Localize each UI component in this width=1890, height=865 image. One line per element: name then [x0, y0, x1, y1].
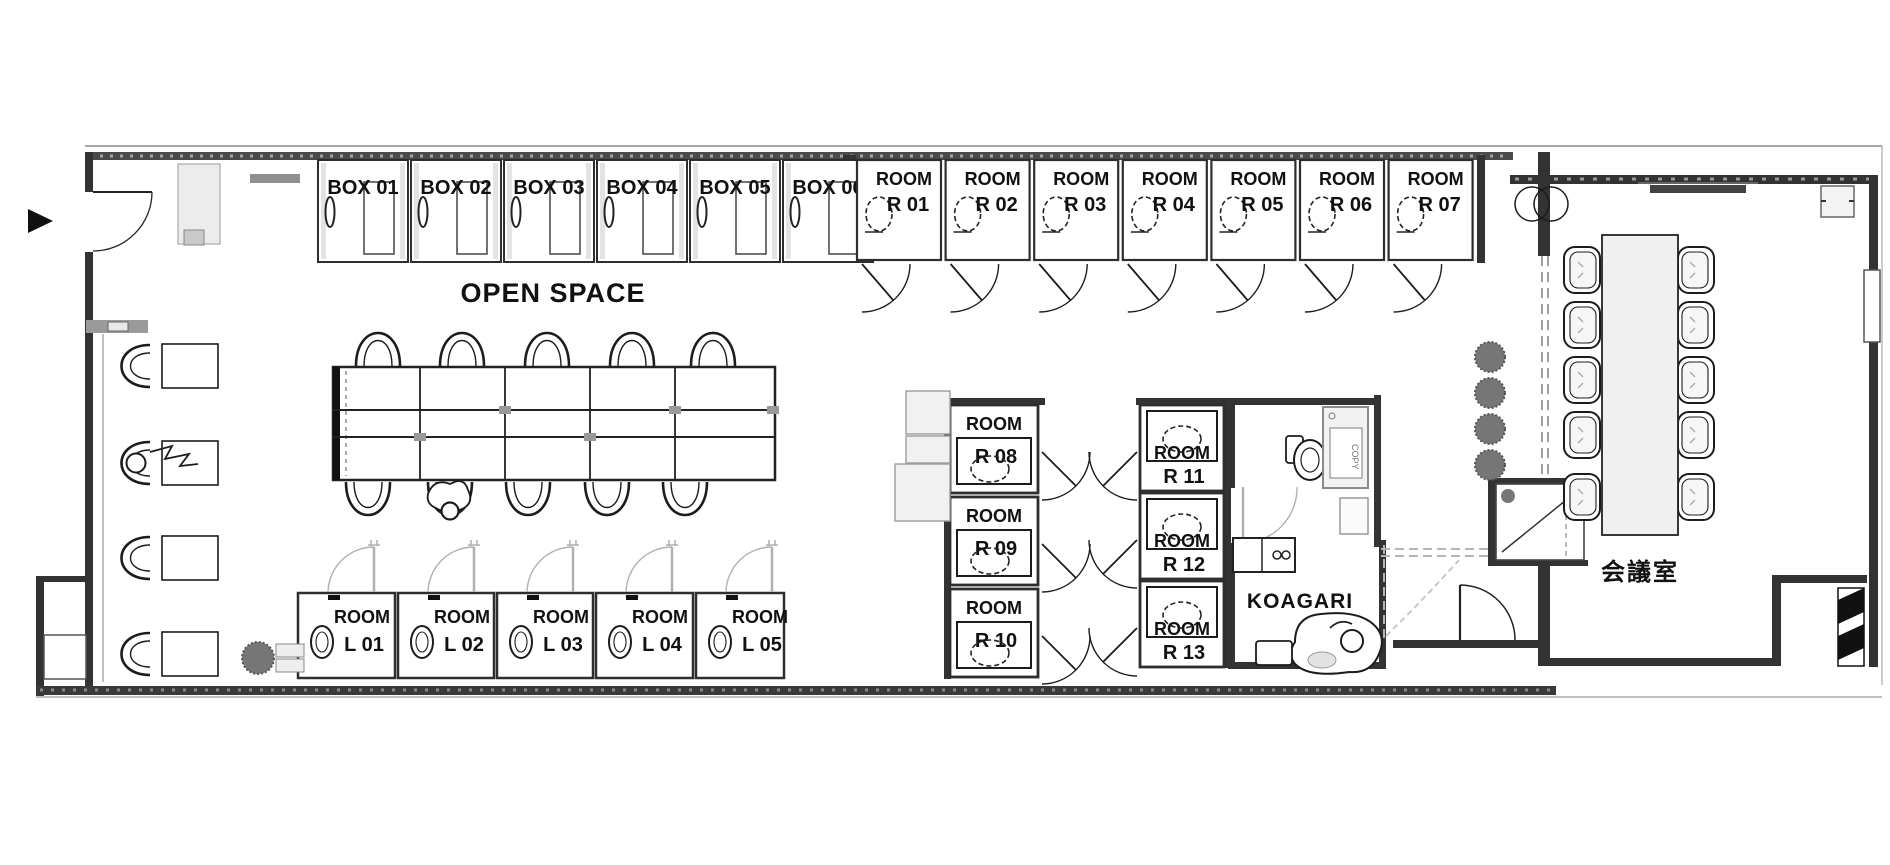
room-label: ROOM [876, 169, 932, 189]
room-id-label: L 02 [444, 634, 484, 656]
meeting-chair-icon [1678, 412, 1714, 458]
chair-icon [122, 345, 151, 387]
plant-icon [1475, 414, 1505, 444]
box-room-label: BOX 02 [420, 177, 491, 199]
room-label: ROOM [1230, 169, 1286, 189]
box-rooms: BOX 01BOX 02BOX 03BOX 04BOX 05BOX 06 [318, 160, 873, 262]
dashed-door-swing [1386, 560, 1459, 636]
open-space: OPEN SPACE [333, 278, 779, 520]
room-r-010: ROOMR 10 [950, 589, 1090, 684]
room-box-5: BOX 05 [690, 160, 780, 262]
room-r-09: ROOMR 09 [950, 497, 1090, 592]
room-box-1: BOX 01 [318, 160, 408, 262]
room-label: ROOM [1319, 169, 1375, 189]
room-id-label: R 04 [1153, 194, 1196, 216]
room-label: ROOM [966, 414, 1022, 434]
door-arc-icon [328, 540, 380, 592]
koagari-area: KOAGARI [1233, 538, 1382, 674]
room-label: ROOM [334, 607, 390, 627]
chair-icon [585, 482, 629, 515]
door-arc-icon [428, 540, 480, 592]
room-label: ROOM [434, 607, 490, 627]
box-room-label: BOX 01 [327, 177, 398, 199]
room-l-01: ROOML 01 [298, 540, 395, 678]
top-r-rooms: ROOMR 01ROOMR 02ROOMR 03ROOMR 04ROOMR 05… [857, 160, 1473, 312]
person-icon [1341, 630, 1363, 652]
plant-icon [242, 642, 274, 674]
meeting-room: 会議室 [1515, 183, 1864, 666]
koagari-counter [1233, 538, 1295, 572]
floor-plan-page: BOX 01BOX 02BOX 03BOX 04BOX 05BOX 06 ROO… [0, 0, 1890, 865]
side-table [162, 536, 218, 580]
chair-icon [510, 626, 532, 658]
closet-dot [1501, 489, 1515, 503]
meeting-chair-icon [1678, 247, 1714, 293]
box-room-label: BOX 03 [513, 177, 584, 199]
meeting-chair-icon [1678, 302, 1714, 348]
meeting-table [1602, 235, 1678, 535]
room-id-label: L 01 [344, 634, 384, 656]
meeting-chair-icon [1564, 302, 1600, 348]
toilet-icon [1286, 436, 1326, 480]
wall-monitor [1650, 185, 1746, 193]
person-at-desk-icon [428, 481, 471, 519]
room-r-05: ROOMR 05 [1211, 160, 1295, 312]
door-arc-icon [1394, 264, 1442, 312]
door-arc-icon [1305, 264, 1353, 312]
room-r-01: ROOMR 01 [857, 160, 941, 312]
meeting-chair-icon [1564, 412, 1600, 458]
room-id-label: R 05 [1241, 194, 1283, 216]
door-arc-icon [1128, 264, 1176, 312]
meeting-chair-icon [1678, 357, 1714, 403]
meeting-room-window [1864, 270, 1880, 342]
copier-label: COPY [1350, 444, 1360, 470]
room-box-2: BOX 02 [411, 160, 501, 262]
chair-icon [122, 537, 151, 579]
room-r-02: ROOMR 02 [946, 160, 1030, 312]
chair-icon [346, 482, 390, 515]
room-r-03: ROOMR 03 [1034, 160, 1118, 312]
door-arc-icon [726, 540, 778, 592]
room-l-02: ROOML 02 [398, 540, 494, 678]
room-id-label: R 06 [1330, 194, 1372, 216]
room-id-label: R 02 [975, 194, 1017, 216]
door-arc-icon [1216, 264, 1264, 312]
lounge-seat [122, 536, 219, 580]
room-id-label: R 11 [1163, 466, 1204, 488]
door-arc-icon [1042, 544, 1090, 592]
room-r-13: ROOMR 13 [1089, 581, 1224, 676]
entrance-arrow-icon [28, 209, 53, 233]
chair-icon [440, 333, 484, 366]
plant-icon [1475, 378, 1505, 408]
room-id-label: R 13 [1163, 642, 1205, 664]
room-label: ROOM [966, 598, 1022, 618]
wall-panel-display [108, 322, 128, 331]
chair-icon [122, 633, 151, 675]
bottom-l-rooms: ROOML 01ROOML 02ROOML 03ROOML 04ROOML 05 [298, 540, 788, 678]
meeting-room-label: 会議室 [1601, 558, 1679, 586]
lounge-seat [122, 344, 219, 388]
chair-icon [609, 626, 631, 658]
hatched-pillar [1838, 588, 1864, 666]
plant-icon [1475, 342, 1505, 372]
lounge-seat [122, 632, 219, 676]
room-l-05: ROOML 05 [696, 540, 788, 678]
mid-left-r-rooms: ROOMR 08ROOMR 09ROOMR 10 [950, 405, 1090, 684]
door-arc-icon [1039, 264, 1087, 312]
koagari-label: KOAGARI [1247, 590, 1353, 613]
open-space-table [333, 367, 779, 480]
wc-area: COPY [1243, 407, 1368, 543]
chair-icon [525, 333, 569, 366]
room-id-label: R 12 [1163, 554, 1205, 576]
entrance-sign [250, 174, 300, 183]
room-id-label: L 05 [742, 634, 782, 656]
meeting-chair-icon [1678, 474, 1714, 520]
chair-icon [356, 333, 400, 366]
room-label: ROOM [1154, 531, 1210, 551]
meeting-chair-icon [1564, 474, 1600, 520]
floor-plan-svg: BOX 01BOX 02BOX 03BOX 04BOX 05BOX 06 ROO… [0, 0, 1890, 865]
door-arc-icon [626, 540, 678, 592]
vestibule [1381, 478, 1588, 640]
room-label: ROOM [732, 607, 788, 627]
room-r-04: ROOMR 04 [1123, 160, 1207, 312]
mid-right-r-rooms: ROOMR 11ROOMR 12ROOMR 13 [1089, 405, 1224, 676]
room-label: ROOM [1408, 169, 1464, 189]
room-r-07: ROOMR 07 [1389, 160, 1473, 312]
door-arc-icon [1089, 628, 1137, 676]
room-r-06: ROOMR 06 [1300, 160, 1384, 312]
left-lounge-seats [122, 344, 219, 676]
side-table [1256, 641, 1292, 665]
copier-icon: COPY [1323, 407, 1368, 488]
side-table [162, 344, 218, 388]
box-room-label: BOX 05 [699, 177, 770, 199]
meeting-entry-door-icon [1460, 585, 1515, 640]
room-id-label: L 03 [543, 634, 583, 656]
room-l-04: ROOML 04 [596, 540, 693, 678]
entrance-device [184, 230, 204, 245]
room-box-3: BOX 03 [504, 160, 594, 262]
room-label: ROOM [632, 607, 688, 627]
box-room-label: BOX 06 [792, 177, 863, 199]
room-l-03: ROOML 03 [497, 540, 593, 678]
plant-icon [1475, 450, 1505, 480]
door-arc-icon [1089, 540, 1137, 588]
wc-cabinet [1340, 498, 1368, 534]
room-label: ROOM [533, 607, 589, 627]
room-label: ROOM [1154, 443, 1210, 463]
room-r-08: ROOMR 08 [950, 405, 1090, 500]
room-label: ROOM [966, 506, 1022, 526]
sofa-icon [1291, 613, 1382, 674]
chair-icon [506, 482, 550, 515]
chair-icon [663, 482, 707, 515]
door-arc-icon [1089, 452, 1137, 500]
door-arc-icon [527, 540, 579, 592]
room-box-4: BOX 04 [597, 160, 687, 262]
meeting-chair-icon [1564, 357, 1600, 403]
meeting-chair-icon [1564, 247, 1600, 293]
open-space-label: OPEN SPACE [460, 278, 645, 308]
room-r-11: ROOMR 11 [1089, 405, 1224, 500]
room-label: ROOM [1053, 169, 1109, 189]
door-arc-icon [862, 264, 910, 312]
chair-icon [411, 626, 433, 658]
wc-door-icon [1243, 487, 1297, 543]
chair-icon [311, 626, 333, 658]
door-arc-icon [1042, 636, 1090, 684]
entrance-door-icon [93, 192, 152, 251]
storage-lockers [895, 391, 950, 521]
room-id-label: R 03 [1064, 194, 1106, 216]
chair-icon [709, 626, 731, 658]
side-table [162, 632, 218, 676]
room-id-label: R 01 [887, 194, 929, 216]
door-arc-icon [951, 264, 999, 312]
box-room-label: BOX 04 [606, 177, 678, 199]
door-arc-icon [1042, 452, 1090, 500]
room-label: ROOM [1142, 169, 1198, 189]
room-r-12: ROOMR 12 [1089, 493, 1224, 588]
room-id-label: R 07 [1418, 194, 1460, 216]
entrance [28, 164, 300, 333]
room-id-label: L 04 [642, 634, 683, 656]
chair-icon [610, 333, 654, 366]
room-label: ROOM [1154, 619, 1210, 639]
room-label: ROOM [965, 169, 1021, 189]
chair-icon [691, 333, 735, 366]
